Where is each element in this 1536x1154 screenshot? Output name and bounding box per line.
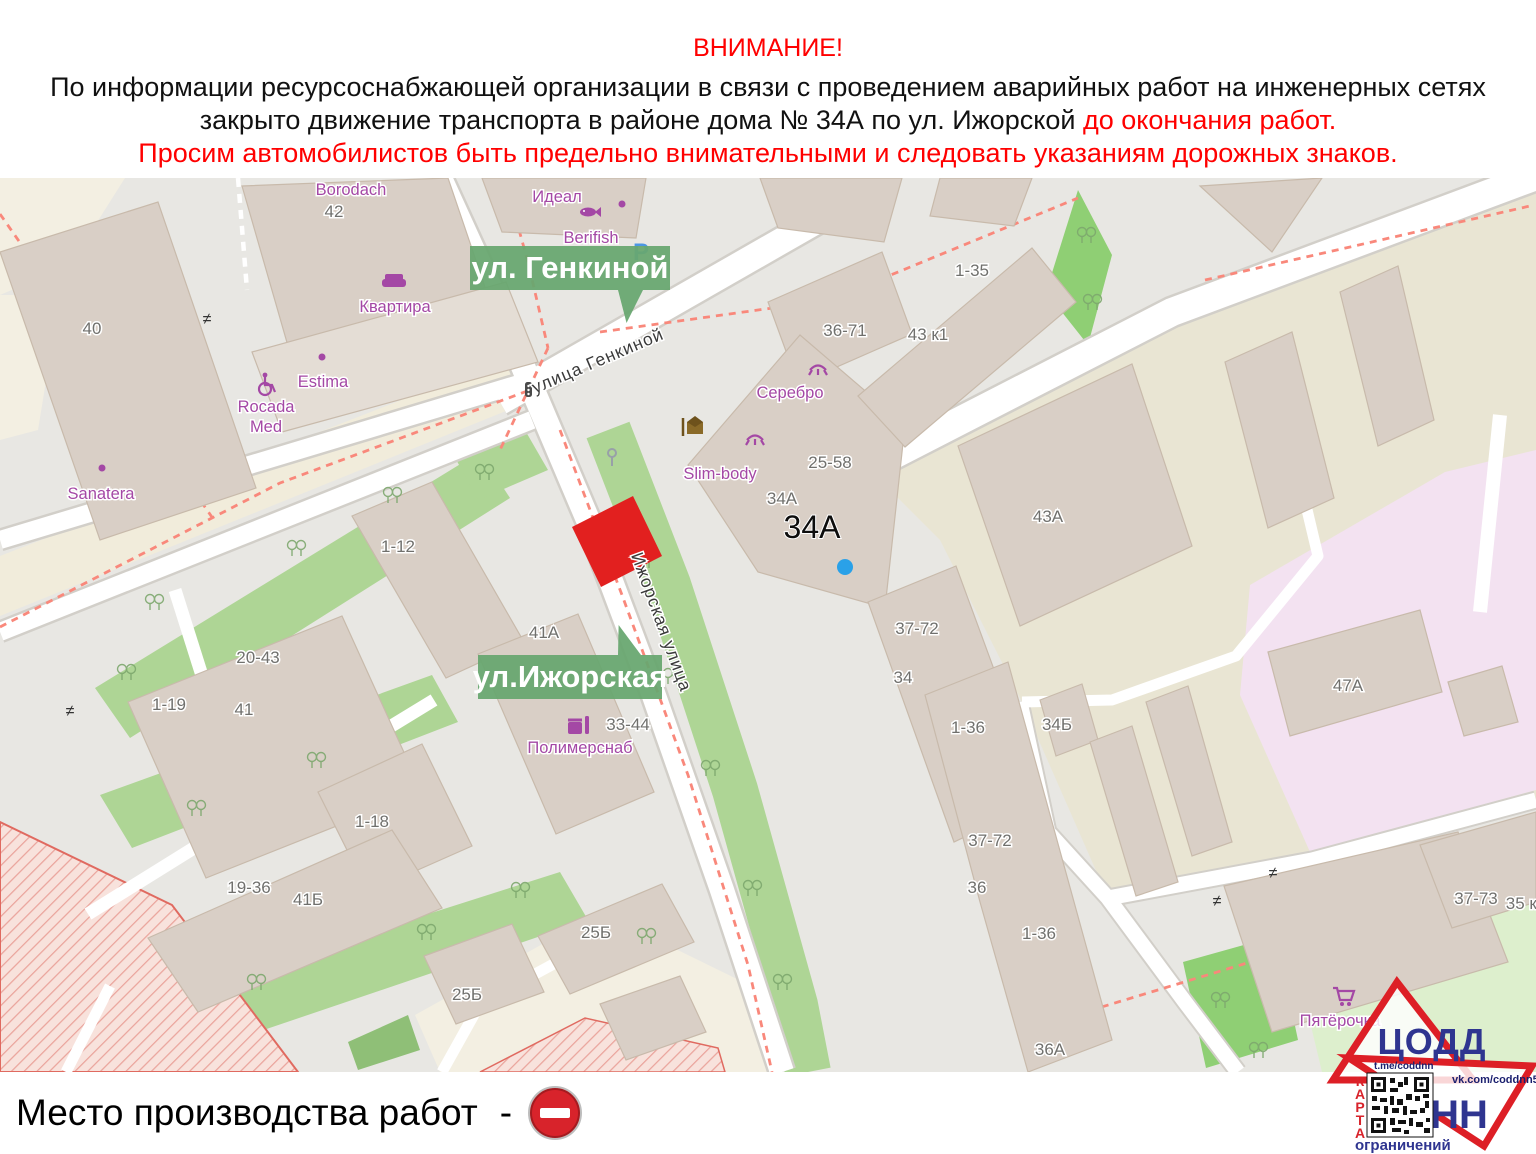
house-number-label: 34Б <box>1042 715 1072 734</box>
poi-label: Sanatera <box>68 485 136 503</box>
house-number-label: 37-73 <box>1454 889 1497 908</box>
street-badge-izhorskaya: ул.Ижорская <box>478 655 662 699</box>
gate-icon: ≠ <box>1269 865 1278 882</box>
poi-dot-icon <box>619 201 626 208</box>
house-number-label: 43А <box>1033 507 1064 526</box>
poi-label: Borodach <box>316 181 387 199</box>
house-number-label: 41 <box>235 700 254 719</box>
house-number-label: 41Б <box>293 890 323 909</box>
poi-label: Полимерснаб <box>527 739 632 757</box>
house-number-label: 19-36 <box>227 878 270 897</box>
house-number-label: 34А <box>767 489 798 508</box>
legend-separator: - <box>500 1092 512 1134</box>
gate-icon: ≠ <box>203 311 212 328</box>
notice-title: ВНИМАНИЕ! <box>0 32 1536 65</box>
poi-label: Серебро <box>756 384 823 402</box>
legend-strip: Место производства работ - <box>0 1072 1536 1154</box>
poi-dot-icon <box>319 354 326 361</box>
house-number-label: 36А <box>1035 1040 1066 1059</box>
notice-line-1: По информации ресурсоснабжающей организа… <box>0 71 1536 104</box>
house-number-label: 36-71 <box>823 321 866 340</box>
poi-label: Berifish <box>563 229 618 247</box>
map: P ≠ ≠ ≠ ≠ <box>0 178 1536 1072</box>
codd-logo: ЦОДД t.me/coddnn vk.com/coddnn52 НН КАРТ… <box>1318 953 1536 1154</box>
logo-vk: vk.com/coddnn52 <box>1452 1074 1536 1086</box>
legend-label: Место производства работ <box>16 1092 478 1134</box>
logo-org-name: ЦОДД <box>1377 1021 1486 1062</box>
sofa-icon <box>382 274 406 287</box>
poi-label: Estima <box>298 373 349 391</box>
karta-vertical-label: КАРТА <box>1355 1073 1365 1141</box>
house-number-label: 25-58 <box>808 453 851 472</box>
house-number-label: 1-19 <box>152 695 186 714</box>
poi-label: Квартира <box>359 298 431 316</box>
logo-restrictions-label: ограничений <box>1355 1137 1451 1154</box>
house-number-label: 37-72 <box>895 619 938 638</box>
house-number-label: 47А <box>1333 676 1364 695</box>
notice-line-2-black: закрыто движение транспорта в районе дом… <box>200 105 1076 135</box>
poi-dot-icon <box>99 465 106 472</box>
logo-city: НН <box>1430 1093 1488 1137</box>
map-canvas: P ≠ ≠ ≠ ≠ <box>0 178 1536 1072</box>
poi-label: Slim-body <box>683 465 757 483</box>
house-number-label: 33-44 <box>606 715 649 734</box>
shop-icon <box>568 716 589 734</box>
house-number-label: 25Б <box>581 923 611 942</box>
house-number-label: 1-12 <box>381 537 415 556</box>
street-badge-izhorskaya-label: ул.Ижорская <box>473 659 668 695</box>
gate-icon: ≠ <box>66 703 75 720</box>
house-number-label: 42 <box>325 202 344 221</box>
street-badge-genkinoy: ул. Генкиной <box>470 246 670 290</box>
house-number-label: 1-18 <box>355 812 389 831</box>
street-badge-genkinoy-label: ул. Генкиной <box>471 250 668 286</box>
gate-icon: ≠ <box>1213 893 1222 910</box>
house-number-label: 41А <box>529 623 560 642</box>
house-number-label: 25Б <box>452 985 482 1004</box>
house-number-label: 1-36 <box>951 718 985 737</box>
blue-dot-marker <box>837 559 853 575</box>
house-number-label: 36 <box>968 878 987 897</box>
no-entry-bar <box>540 1108 570 1118</box>
house-number-label: 1-36 <box>1022 924 1056 943</box>
house-number-label: 40 <box>83 319 102 338</box>
notice-line-3: Просим автомобилистов быть предельно вни… <box>0 137 1536 170</box>
house-number-label: 20-43 <box>236 648 279 667</box>
notice-header: ВНИМАНИЕ! По информации ресурсоснабжающе… <box>0 0 1536 178</box>
notice-line-2-red: до окончания работ. <box>1083 105 1336 135</box>
house-number-label: 1-35 <box>955 261 989 280</box>
no-entry-sign-icon <box>528 1086 582 1140</box>
qr-code <box>1367 1073 1433 1137</box>
house-number-label: 37-72 <box>968 831 1011 850</box>
road-closure-poster: ВНИМАНИЕ! По информации ресурсоснабжающе… <box>0 0 1536 1154</box>
house-number-label: 35 к1 <box>1506 894 1536 913</box>
notice-line-2: закрыто движение транспорта в районе дом… <box>0 104 1536 137</box>
logo-telegram: t.me/coddnn <box>1374 1061 1433 1072</box>
house-number-label: 43 к1 <box>908 325 949 344</box>
poi-label: Идеал <box>532 188 581 206</box>
house-number-label: 34 <box>894 668 913 687</box>
highlighted-house-number: 34А <box>784 509 842 545</box>
